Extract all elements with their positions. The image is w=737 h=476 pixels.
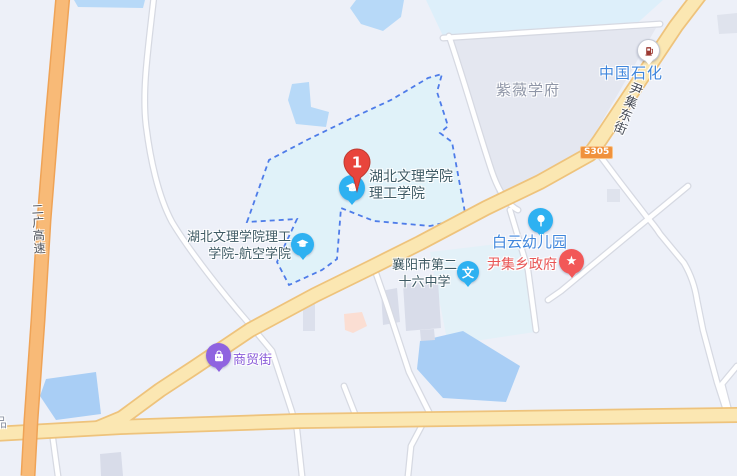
poi-label-hangkong[interactable]: 湖北文理学院理工 学院-航空学院	[185, 229, 291, 263]
building	[420, 329, 435, 341]
poi-label-yinji-gov[interactable]: 尹集乡政府	[487, 254, 557, 274]
kindergarten-pinwheel-icon[interactable]	[528, 208, 553, 233]
map-canvas[interactable]: 尹集东街 二广高速 S305 紫薇学府 品 湖北文理学院 理工学院 1 湖北文理…	[0, 0, 737, 476]
edge-label-fragment: 品	[0, 412, 7, 431]
street-label-erguang-expressway: 二广高速	[29, 203, 49, 256]
building	[100, 452, 123, 476]
building	[607, 189, 620, 202]
pond	[350, 0, 404, 31]
pond	[288, 82, 329, 127]
graduation-cap-icon[interactable]	[291, 233, 314, 256]
poi-label-hubei-ligong[interactable]: 湖北文理学院 理工学院	[369, 169, 453, 203]
marker-number: 1	[352, 154, 362, 172]
pond	[40, 372, 101, 420]
route-shield-s305: S305	[580, 146, 613, 159]
government-star-icon[interactable]: ★	[559, 249, 584, 274]
building-pink	[344, 312, 367, 333]
shopping-bag-icon[interactable]	[206, 343, 231, 368]
poi-label-sinopec[interactable]: 中国石化	[599, 62, 663, 83]
area-label-ziwei: 紫薇学府	[496, 79, 560, 100]
selected-marker-pin[interactable]: 1	[342, 147, 372, 195]
gas-pump-icon[interactable]	[637, 39, 660, 62]
poi-label-school26[interactable]: 襄阳市第二 十六中学	[391, 257, 458, 291]
pond	[74, 0, 145, 8]
poi-label-shangmao[interactable]: 商贸街	[233, 349, 272, 368]
pond	[417, 331, 520, 402]
poi-label-baiyun[interactable]: 白云幼儿园	[492, 231, 567, 252]
building	[717, 13, 737, 34]
school-wen-icon[interactable]: 文	[457, 261, 479, 283]
